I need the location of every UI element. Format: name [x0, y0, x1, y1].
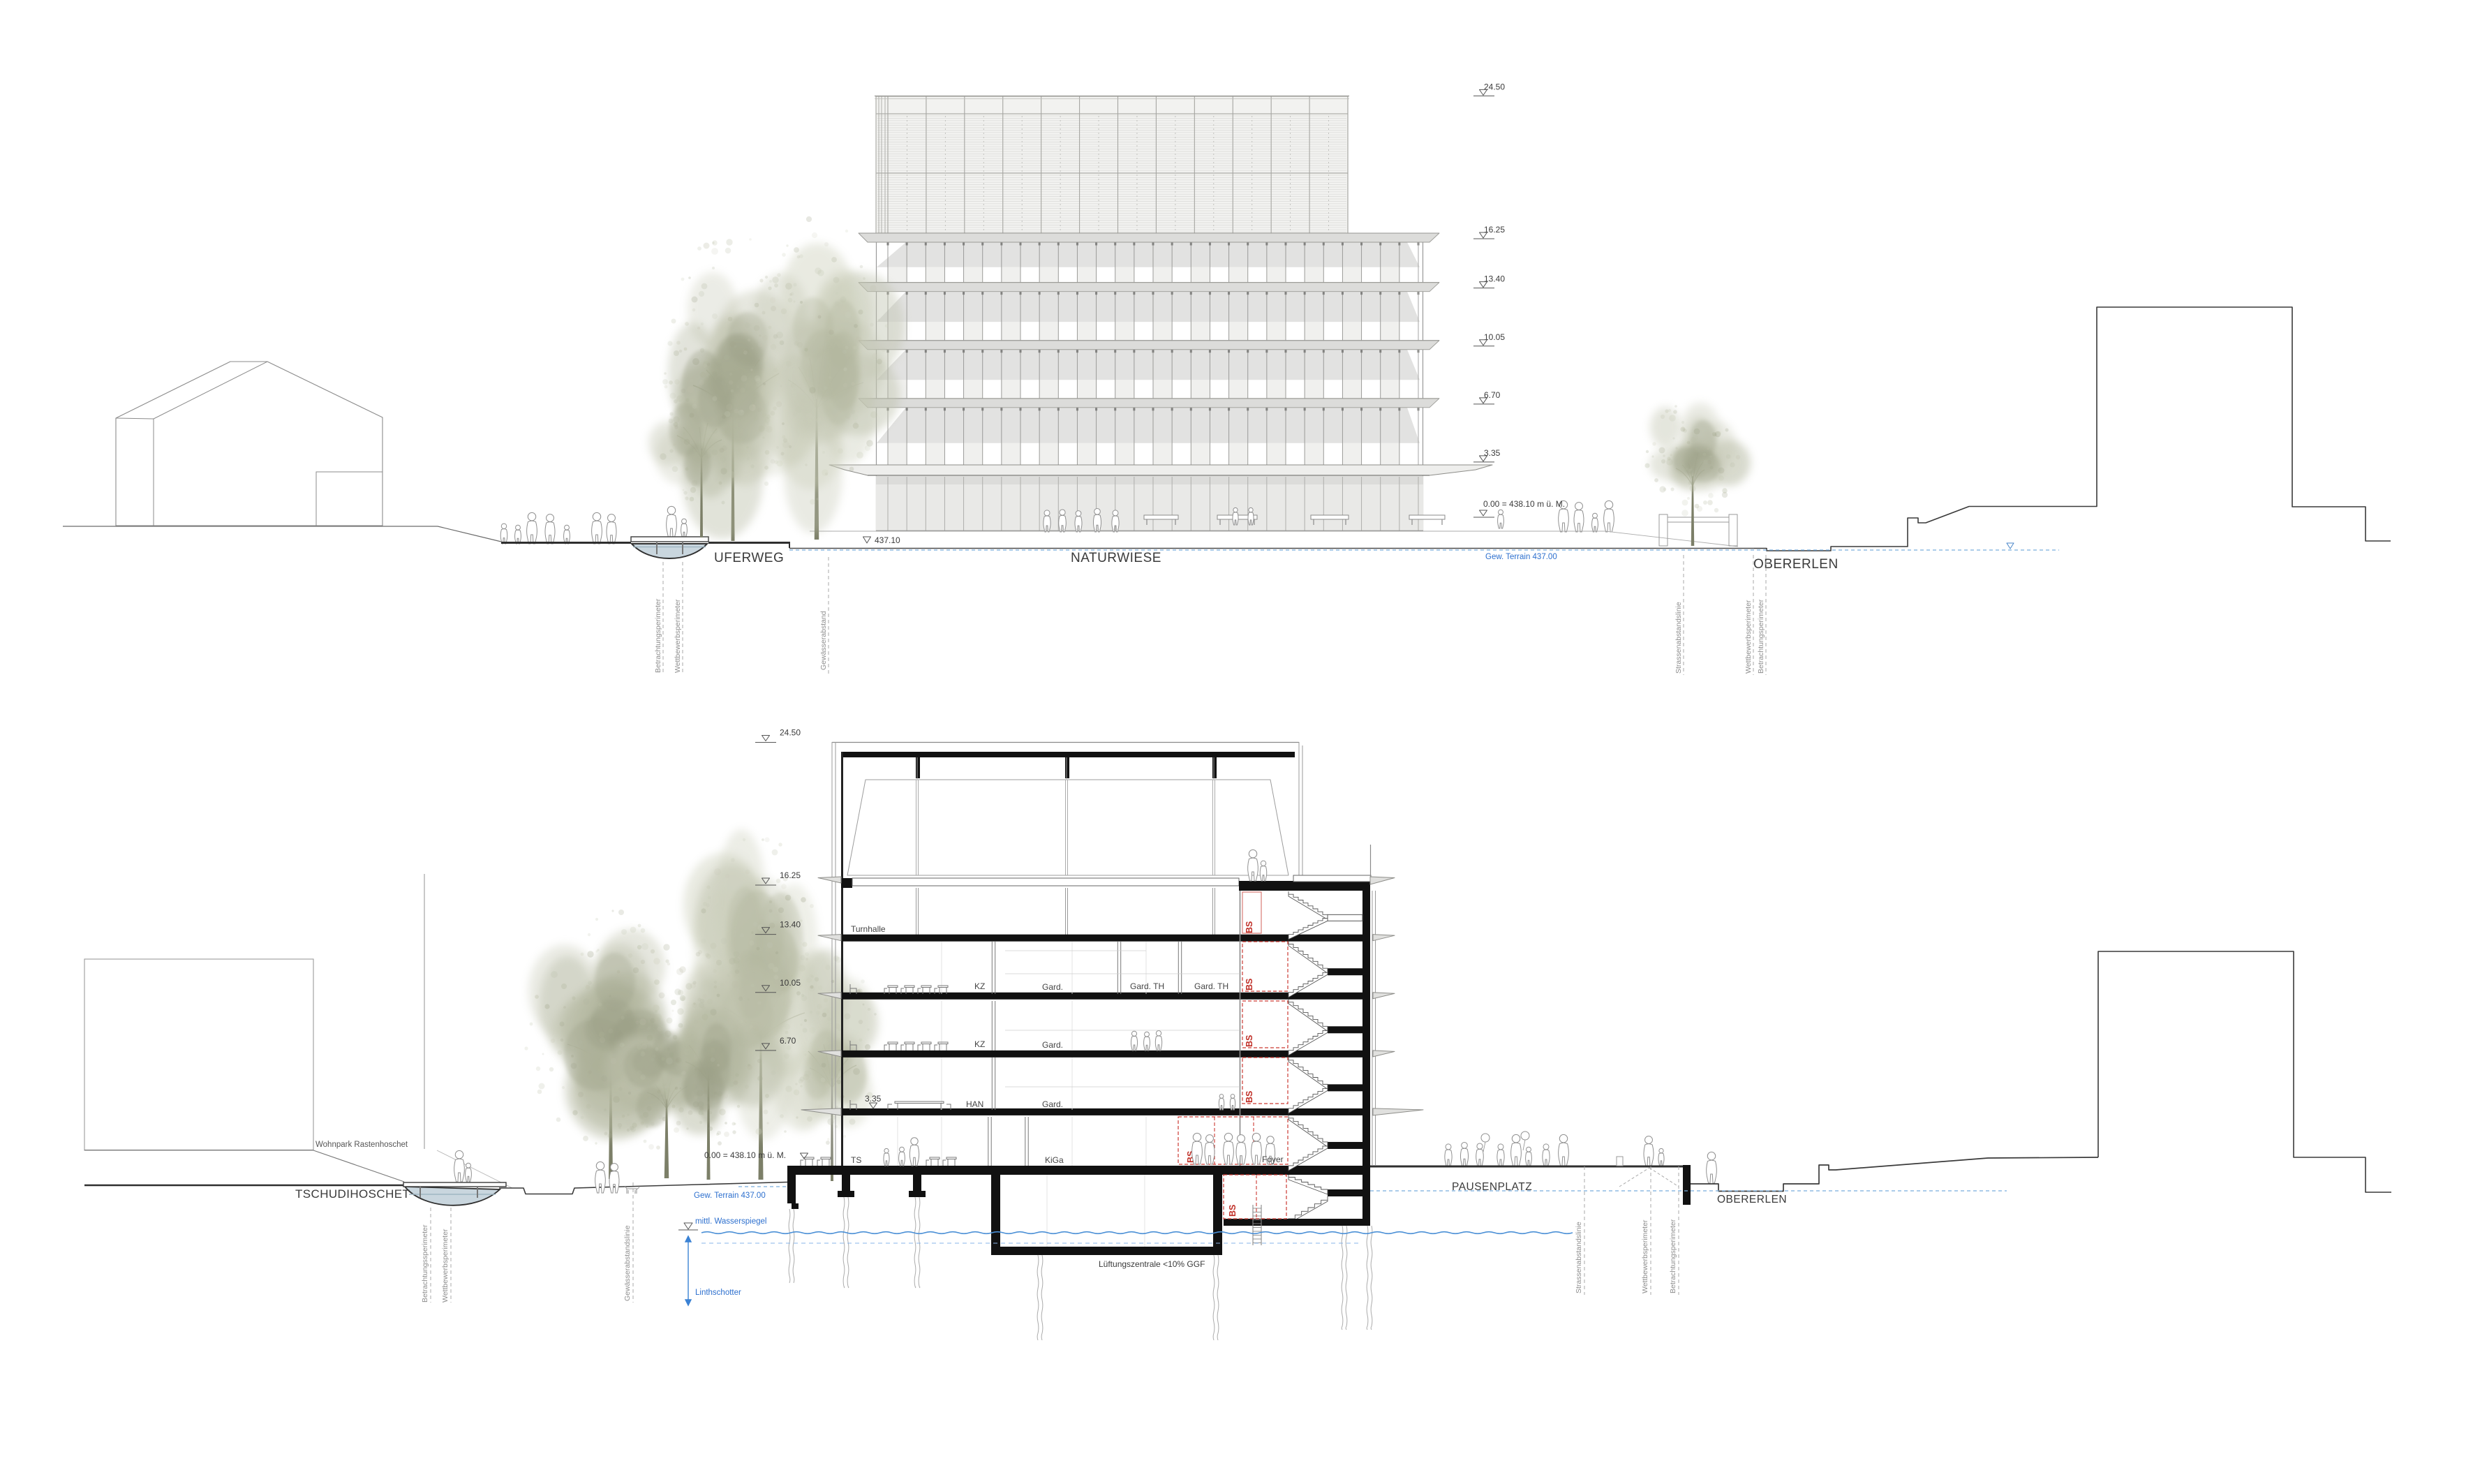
svg-text:Turnhalle: Turnhalle — [851, 924, 886, 934]
svg-text:6.70: 6.70 — [780, 1036, 796, 1046]
svg-text:KZ: KZ — [974, 981, 985, 991]
svg-text:NATURWIESE: NATURWIESE — [1071, 551, 1161, 565]
svg-text:Gard. TH: Gard. TH — [1194, 981, 1228, 991]
svg-text:Strassenabstandslinie: Strassenabstandslinie — [1575, 1222, 1583, 1293]
svg-text:Gard.: Gard. — [1042, 1040, 1063, 1050]
svg-text:3.35: 3.35 — [865, 1094, 882, 1104]
svg-text:10.05: 10.05 — [780, 978, 801, 988]
svg-text:Betrachtungsperimeter: Betrachtungsperimeter — [654, 598, 662, 673]
svg-text:Betrachtungssperimeter: Betrachtungssperimeter — [421, 1224, 429, 1303]
svg-text:16.25: 16.25 — [1484, 225, 1505, 235]
svg-text:Wettbewerbsperimeter: Wettbewerbsperimeter — [1744, 600, 1753, 674]
svg-text:TSCHUDIHOSCHET: TSCHUDIHOSCHET — [295, 1187, 410, 1201]
svg-text:OBERERLEN: OBERERLEN — [1717, 1194, 1787, 1205]
svg-text:Wettbewerbsperimeter: Wettbewerbsperimeter — [674, 599, 682, 673]
svg-text:Gard. TH: Gard. TH — [1130, 981, 1164, 991]
svg-text:13.40: 13.40 — [780, 920, 801, 930]
svg-text:Betrachtungsperimeter: Betrachtungsperimeter — [1757, 599, 1765, 674]
svg-text:Gewässerabstandslinie: Gewässerabstandslinie — [623, 1225, 632, 1301]
svg-text:Gard.: Gard. — [1042, 1099, 1063, 1109]
svg-text:Gewässerabstand: Gewässerabstand — [819, 611, 828, 670]
svg-text:24.50: 24.50 — [780, 728, 801, 738]
svg-text:Gew. Terrain 437.00: Gew. Terrain 437.00 — [1485, 553, 1557, 561]
svg-text:Gew. Terrain 437.00: Gew. Terrain 437.00 — [694, 1192, 766, 1200]
svg-text:Betrachtungsperimeter: Betrachtungsperimeter — [1669, 1219, 1677, 1293]
svg-text:UFERWEG: UFERWEG — [714, 551, 784, 565]
svg-text:Wettbewerbsperimeter: Wettbewerbsperimeter — [441, 1229, 450, 1303]
svg-text:0.00 = 438.10 m ü. M.: 0.00 = 438.10 m ü. M. — [1483, 499, 1565, 509]
svg-text:Wohnpark Rastenhoschet: Wohnpark Rastenhoschet — [315, 1141, 408, 1149]
svg-text:Wettbewerbsperimeter: Wettbewerbsperimeter — [1641, 1219, 1649, 1293]
svg-text:BS: BS — [1245, 1035, 1254, 1047]
svg-text:KiGa: KiGa — [1045, 1155, 1064, 1165]
svg-text:BS: BS — [1228, 1205, 1238, 1217]
svg-text:24.50: 24.50 — [1484, 82, 1505, 91]
svg-text:Lüftungszentrale <10% GGF: Lüftungszentrale <10% GGF — [1099, 1259, 1205, 1269]
svg-text:16.25: 16.25 — [780, 870, 801, 880]
svg-text:TS: TS — [851, 1155, 861, 1165]
svg-text:KZ: KZ — [974, 1039, 985, 1049]
svg-text:mittl. Wasserspiegel: mittl. Wasserspiegel — [695, 1217, 766, 1226]
svg-text:Strassenabstandslinie: Strassenabstandslinie — [1674, 602, 1683, 674]
svg-text:13.40: 13.40 — [1484, 274, 1505, 284]
svg-text:BS: BS — [1245, 921, 1254, 933]
svg-text:10.05: 10.05 — [1484, 332, 1505, 342]
svg-text:HAN: HAN — [966, 1099, 983, 1109]
svg-text:0.00 = 438.10 m ü. M.: 0.00 = 438.10 m ü. M. — [704, 1150, 786, 1160]
svg-text:Gard.: Gard. — [1042, 982, 1063, 992]
svg-text:Foyer: Foyer — [1262, 1155, 1284, 1164]
svg-text:Linthschotter: Linthschotter — [695, 1289, 741, 1297]
svg-text:437.10: 437.10 — [875, 535, 900, 545]
svg-text:BS: BS — [1245, 979, 1254, 990]
svg-text:BS: BS — [1245, 1091, 1254, 1103]
